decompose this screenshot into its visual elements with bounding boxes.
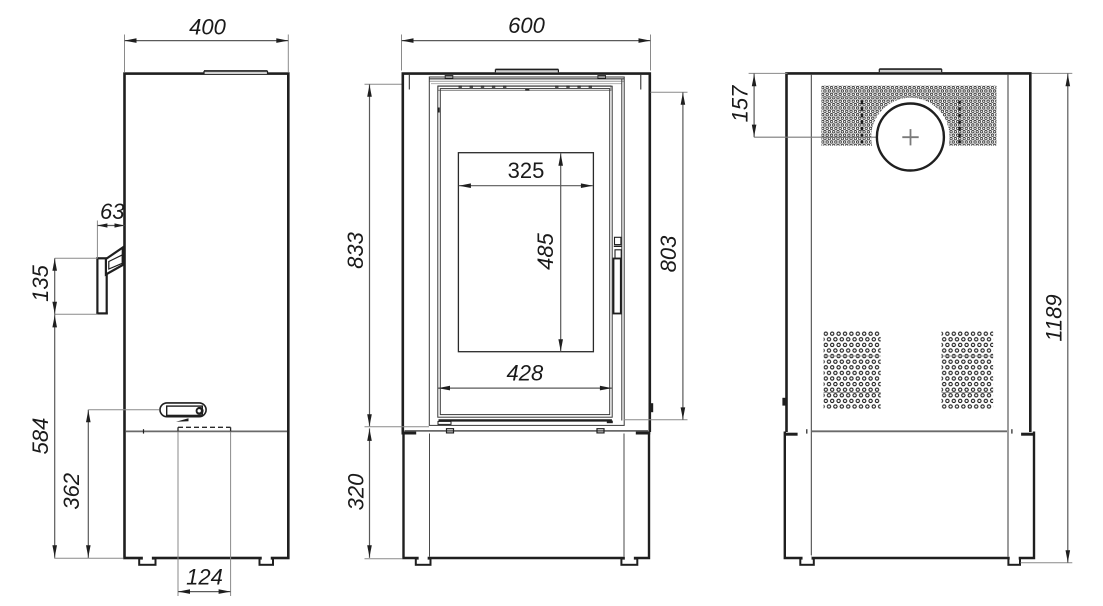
svg-text:803: 803: [656, 235, 681, 272]
svg-text:1189: 1189: [1042, 294, 1067, 341]
svg-text:124: 124: [186, 565, 223, 590]
svg-text:600: 600: [508, 13, 545, 38]
svg-text:428: 428: [507, 360, 544, 385]
svg-text:584: 584: [28, 418, 53, 455]
svg-text:135: 135: [28, 264, 53, 301]
svg-text:63: 63: [100, 199, 125, 224]
svg-text:157: 157: [728, 85, 753, 122]
svg-text:400: 400: [189, 15, 226, 40]
svg-text:320: 320: [343, 473, 368, 510]
svg-text:833: 833: [343, 231, 368, 268]
svg-text:485: 485: [533, 232, 558, 269]
svg-text:325: 325: [508, 158, 545, 183]
svg-text:362: 362: [59, 473, 84, 510]
